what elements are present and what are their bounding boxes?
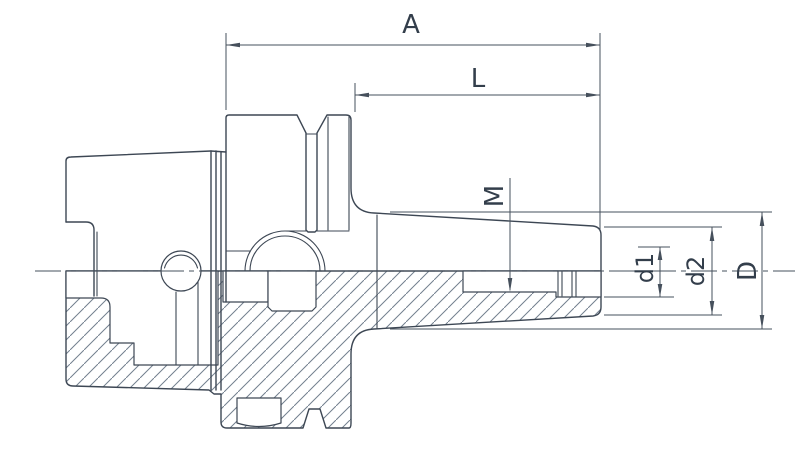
dome-arc-inner [250, 236, 320, 271]
dim-label-d2: d2 [682, 256, 710, 287]
arrow-d-bottom [760, 315, 765, 329]
arrow-l-right [586, 93, 600, 98]
dim-label-m: M [480, 185, 510, 207]
dim-label-l: L [471, 64, 486, 94]
arrow-d2-top [710, 227, 715, 241]
shank-outline [66, 151, 211, 222]
drive-slot [237, 398, 281, 427]
arrow-a-right [586, 43, 600, 48]
dimension-d1: d1 [604, 247, 674, 297]
technical-drawing-page: A L M d1 d2 D [0, 0, 812, 452]
dim-label-d: D [733, 261, 763, 281]
tool-holder-drawing: A L M d1 d2 D [0, 0, 812, 452]
dimension-l: L [355, 64, 600, 112]
ring-inner-faces [328, 117, 349, 230]
arrow-d1-bottom [658, 284, 663, 297]
mid-cavity [223, 271, 268, 302]
dimension-a: A [226, 10, 600, 230]
dome-arc-outer [245, 231, 325, 271]
section-lower-half [66, 271, 601, 428]
arrow-d-top [760, 212, 765, 226]
arrow-d2-bottom [710, 301, 715, 315]
dim-label-d1: d1 [631, 253, 659, 284]
dome-slot [268, 271, 316, 311]
arrow-l-left [355, 93, 369, 98]
arrow-a-left [226, 43, 240, 48]
dim-label-a: A [402, 10, 420, 40]
